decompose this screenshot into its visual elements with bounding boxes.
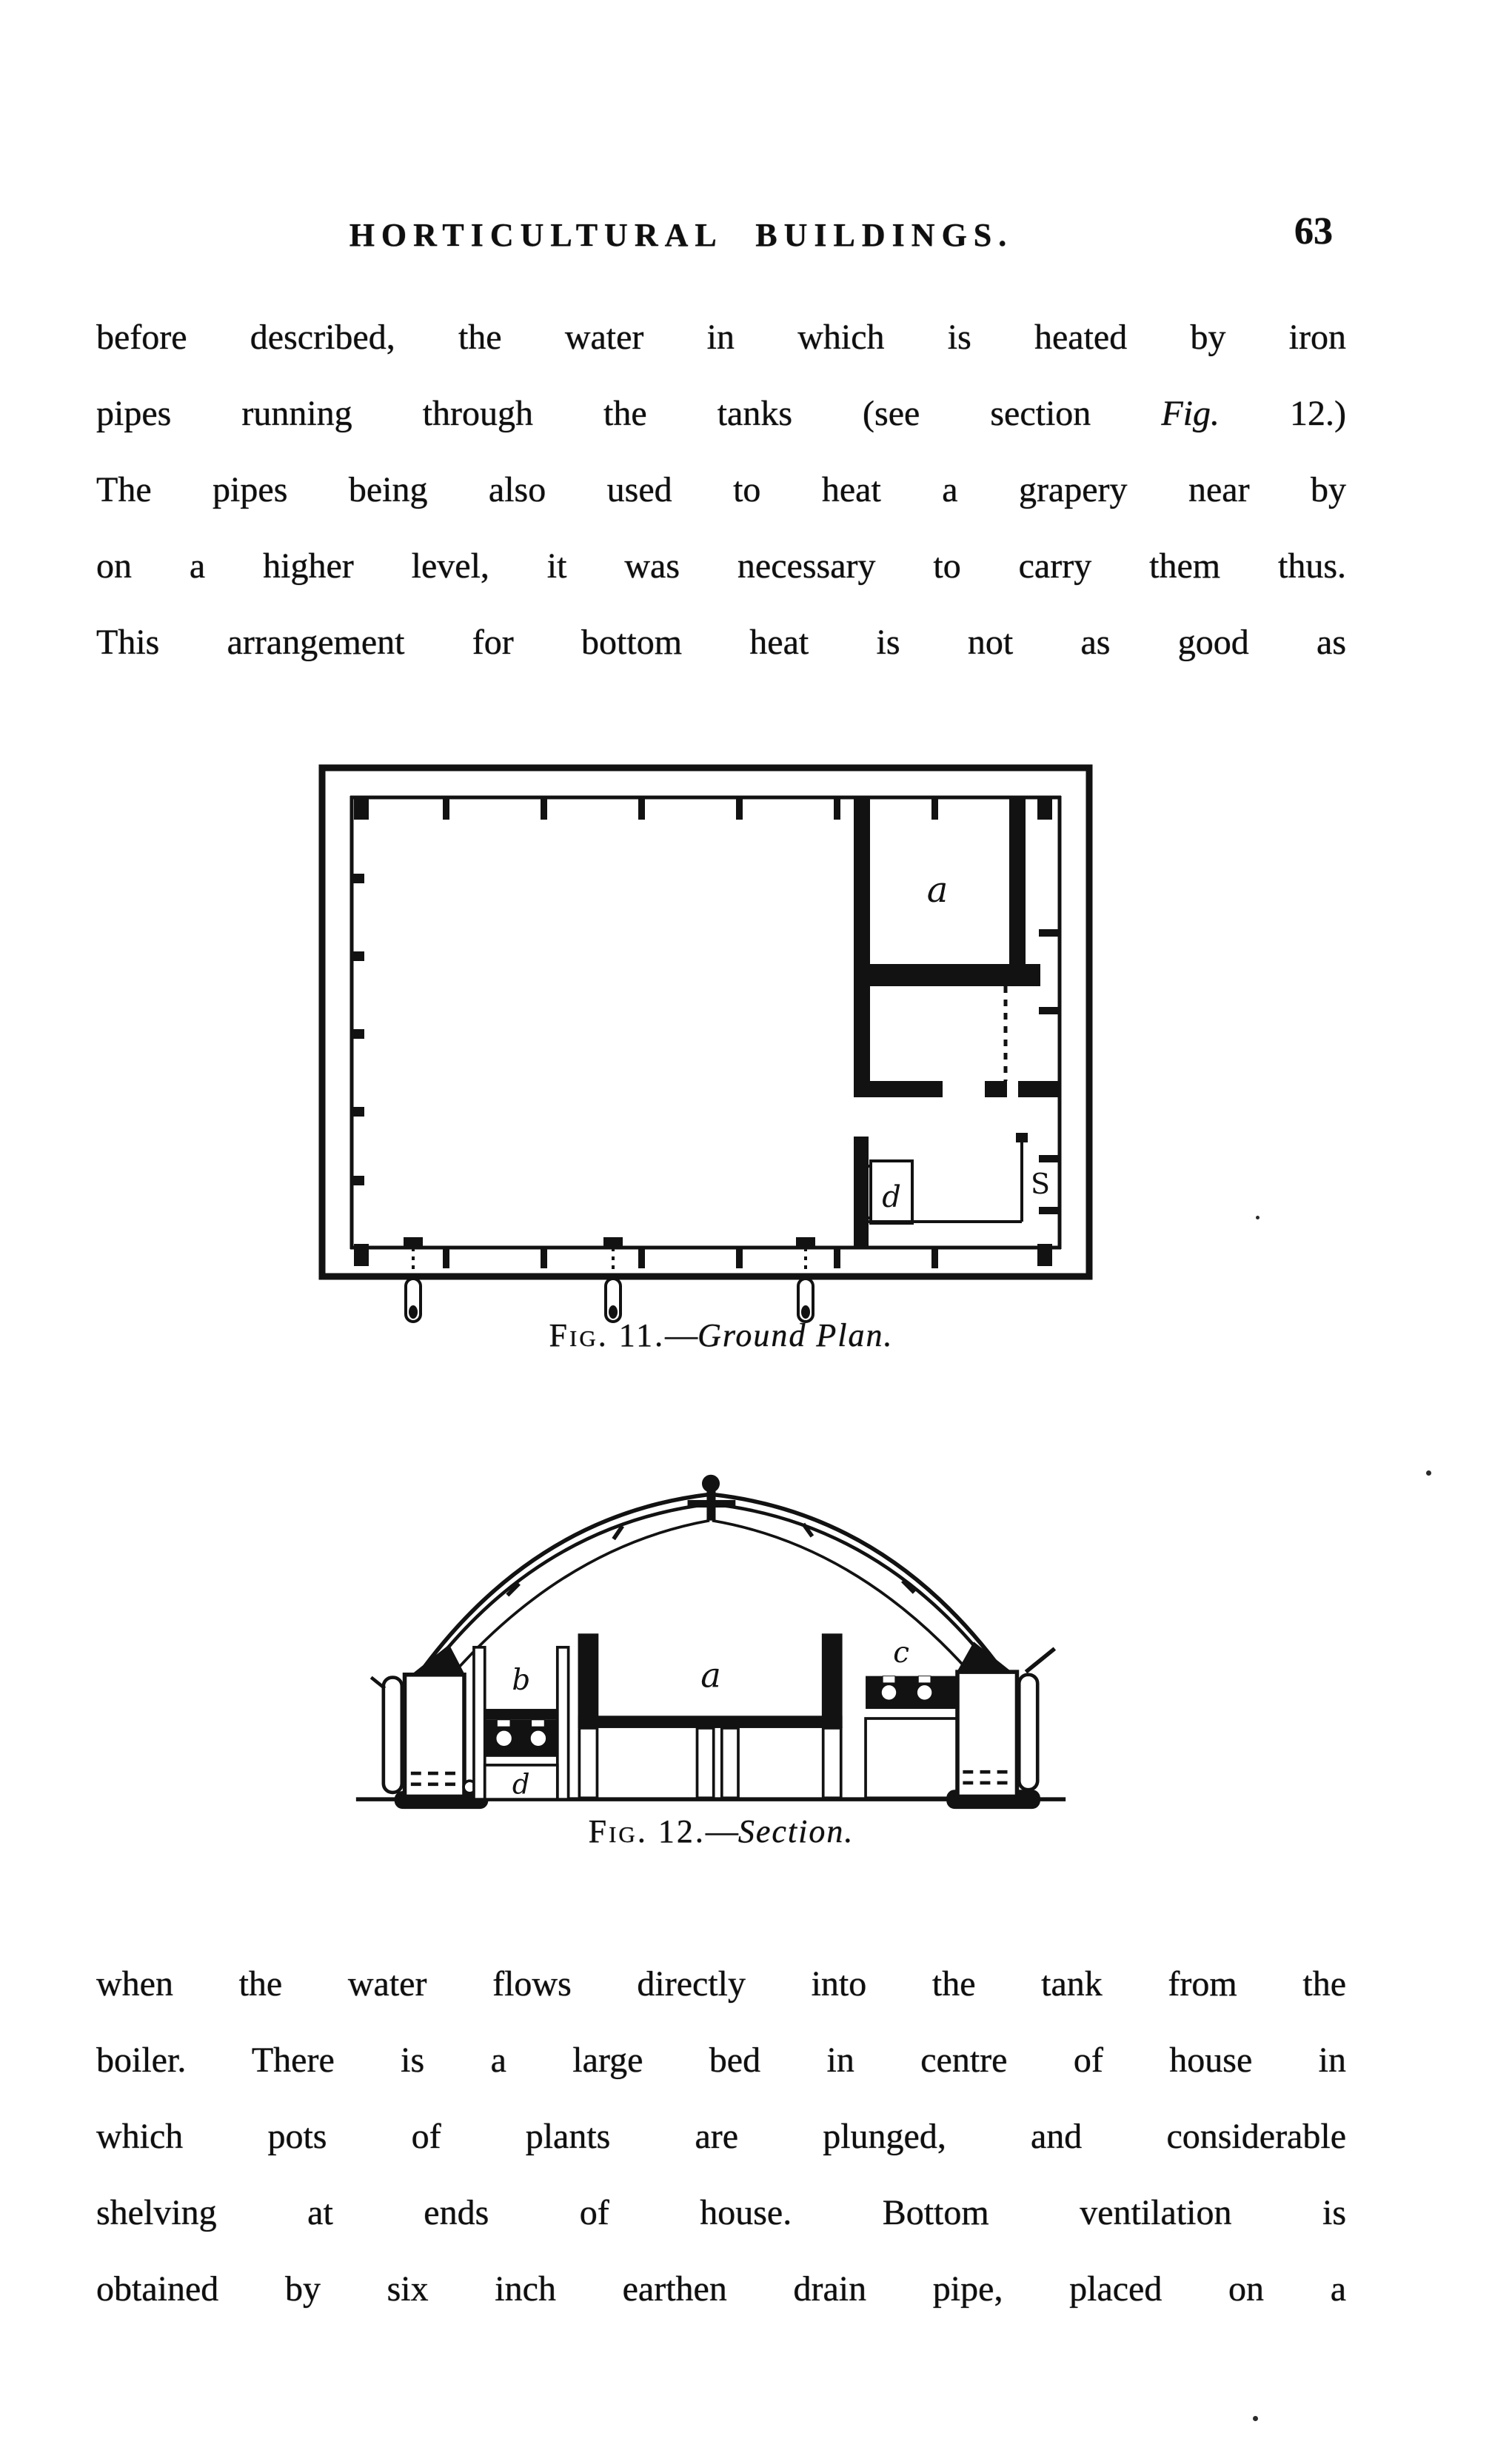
paragraph-2: when the water flows directly into the t…	[96, 1946, 1346, 2327]
figure-12-caption: Fig. 12.—Section.	[96, 1813, 1346, 1850]
text-line: before described, the water in which is …	[96, 299, 1346, 375]
caption-title: Ground Plan.	[698, 1317, 893, 1353]
text-line: pipes running through the tanks (see sec…	[96, 375, 1346, 452]
outer-wall	[322, 768, 1089, 1276]
flue-d-label: d	[882, 1180, 901, 1214]
figure-12-section: b d a	[341, 1472, 1081, 1828]
text-line: The pipes being also used to heat a grap…	[96, 452, 1346, 528]
text-line: boiler. There is a large bed in centre o…	[96, 2022, 1346, 2098]
ink-speck	[1253, 2416, 1258, 2421]
bench-b-label: b	[512, 1664, 530, 1697]
line-segment: 12.)	[1290, 394, 1346, 433]
caption-title: Section.	[738, 1813, 854, 1850]
arched-roof	[409, 1475, 1014, 1683]
bench-c-label: c	[893, 1636, 909, 1670]
caption-dash: —	[706, 1813, 738, 1850]
right-bench: c	[866, 1636, 959, 1798]
left-side-wall	[371, 1675, 488, 1809]
text-line: shelving at ends of house. Bottom ventil…	[96, 2175, 1346, 2251]
boiler-room-walls: a	[854, 797, 1061, 1097]
caption-label: Fig. 11.	[549, 1317, 666, 1353]
text-line: on a higher level, it was necessary to c…	[96, 528, 1346, 604]
inner-wall	[350, 796, 1061, 1249]
italic-fig-ref: Fig.	[1161, 394, 1220, 433]
caption-dash: —	[665, 1317, 698, 1353]
glazing-post-ticks	[352, 797, 1060, 1268]
center-bed: a	[578, 1633, 843, 1798]
ink-speck	[1256, 1216, 1260, 1219]
page-number: 63	[1294, 210, 1333, 253]
bench-d-label: d	[512, 1769, 530, 1801]
figure-11-caption: Fig. 11.—Ground Plan.	[96, 1316, 1346, 1354]
section-drawing: b d a	[341, 1472, 1081, 1828]
text-line: obtained by six inch earthen drain pipe,…	[96, 2251, 1346, 2327]
shelf-s-label: S	[1031, 1168, 1050, 1200]
book-page: HORTICULTURAL BUILDINGS. 63 before descr…	[0, 0, 1512, 2450]
text-line: This arrangement for bottom heat is not …	[96, 604, 1346, 680]
text-line: which pots of plants are plunged, and co…	[96, 2098, 1346, 2175]
text-line: when the water flows directly into the t…	[96, 1946, 1346, 2022]
right-side-wall	[946, 1649, 1054, 1809]
caption-label: Fig. 12.	[589, 1813, 706, 1850]
running-header: HORTICULTURAL BUILDINGS.	[96, 216, 1266, 254]
bed-a-label: a	[700, 1655, 721, 1695]
flue-and-shelf-walls: d S	[854, 1133, 1050, 1248]
left-bench: b d	[474, 1647, 569, 1801]
ground-plan-drawing: a d S	[317, 763, 1094, 1329]
paragraph-1: before described, the water in which is …	[96, 299, 1346, 680]
line-segment: pipes running through the tanks (see sec…	[96, 394, 1091, 433]
room-a-label: a	[927, 869, 949, 911]
ink-speck	[1426, 1470, 1431, 1476]
figure-11-ground-plan: a d S	[317, 763, 1094, 1329]
